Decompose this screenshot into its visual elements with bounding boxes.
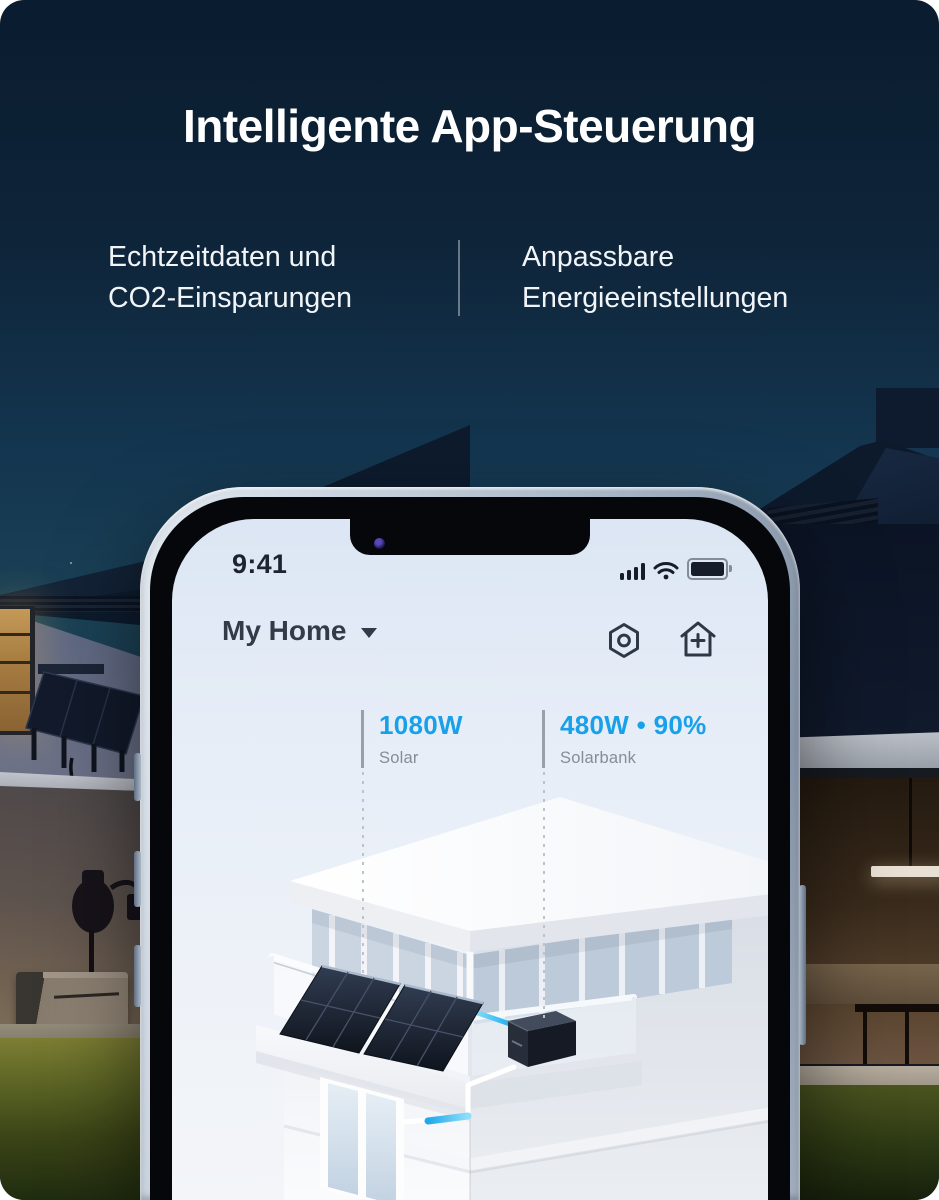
chevron-down-icon: [361, 628, 377, 638]
right-house-window: [785, 768, 939, 1070]
portable-power-station: [16, 972, 128, 1030]
right-house-chimney: [876, 388, 939, 448]
metric-solar-label: Solar: [379, 749, 463, 768]
power-button: [799, 885, 806, 1045]
right-lawn: [785, 1085, 939, 1200]
status-icons: [620, 558, 729, 580]
settings-nut-icon[interactable]: [605, 621, 643, 661]
phone-notch: [350, 519, 590, 555]
feature-energy-settings: Anpassbare Energieeinstellungen: [522, 237, 788, 319]
page-title: Intelligente App-Steuerung: [0, 99, 939, 153]
pendant-lamp: [871, 866, 939, 877]
wifi-icon: [653, 561, 679, 580]
phone-screen: 9:41 My Home: [172, 519, 768, 1200]
callout-line-solarbank: [543, 772, 545, 1019]
add-home-icon[interactable]: [678, 619, 718, 661]
phone-mockup: 9:41 My Home: [140, 487, 800, 1200]
phone-bezel: 9:41 My Home: [150, 497, 790, 1200]
metric-solar: 1080W Solar: [361, 710, 463, 768]
right-house-interior: [793, 778, 939, 1064]
marketing-page: Intelligente App-Steuerung Echtzeitdaten…: [0, 0, 939, 1200]
metric-solarbank-value: 480W • 90%: [560, 710, 707, 741]
metric-solar-value: 1080W: [379, 710, 463, 741]
interior-counter: [793, 964, 939, 1004]
battery-icon: [687, 558, 728, 580]
cellular-signal-icon: [620, 563, 646, 580]
status-time: 9:41: [232, 549, 287, 580]
interior-table: [855, 1004, 939, 1012]
home-selector-dropdown[interactable]: My Home: [222, 615, 377, 647]
mute-switch: [134, 753, 141, 801]
callout-line-solar: [362, 772, 364, 975]
home-name: My Home: [222, 615, 346, 647]
front-camera: [374, 538, 385, 549]
feature-list: Echtzeitdaten und CO2-Einsparungen Anpas…: [108, 237, 788, 319]
volume-up-button: [134, 851, 141, 907]
sky-stars: [0, 0, 2, 2]
metric-solarbank: 480W • 90% Solarbank: [542, 710, 707, 768]
feature-realtime-data: Echtzeitdaten und CO2-Einsparungen: [108, 237, 458, 319]
metric-solarbank-label: Solarbank: [560, 749, 707, 768]
feature-divider: [458, 240, 460, 316]
volume-down-button: [134, 945, 141, 1007]
